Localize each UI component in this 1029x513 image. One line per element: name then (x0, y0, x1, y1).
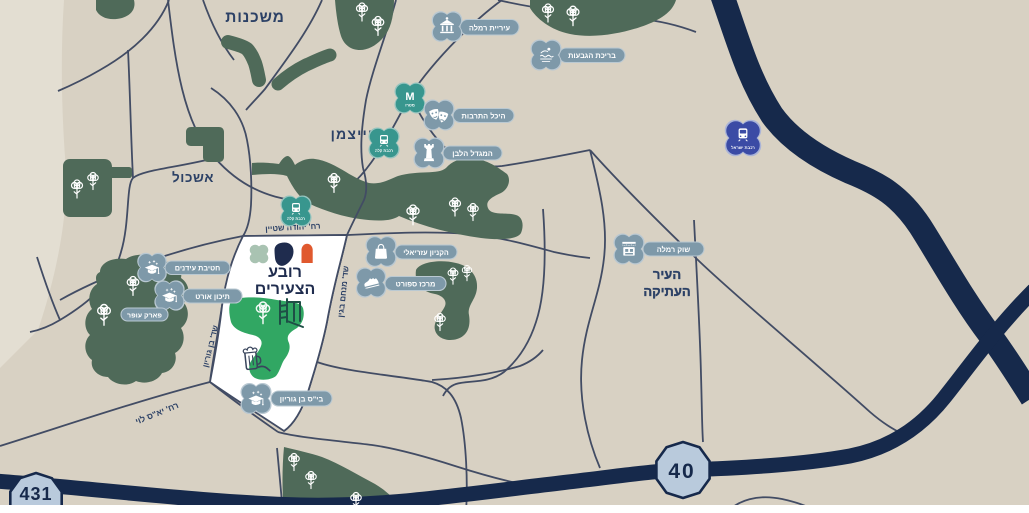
svg-text:תיכון אורט: תיכון אורט (195, 292, 230, 301)
svg-text:פארק עופר: פארק עופר (127, 312, 162, 319)
svg-text:אשכול: אשכול (172, 170, 214, 185)
svg-text:M: M (405, 91, 414, 103)
svg-text:רכבת קלה: רכבת קלה (287, 216, 305, 221)
svg-text:בי"ס בן גוריון: בי"ס בן גוריון (280, 395, 324, 404)
svg-text:משכנות: משכנות (225, 9, 284, 26)
svg-text:הקניון עזריאלי: הקניון עזריאלי (403, 248, 449, 257)
svg-text:מרכז ספורט: מרכז ספורט (396, 280, 436, 289)
svg-text:חטיבת עידנים: חטיבת עידנים (175, 264, 221, 273)
svg-text:רובע: רובע (268, 264, 302, 281)
svg-text:המגדל הלבן: המגדל הלבן (452, 149, 493, 158)
svg-text:431: 431 (19, 484, 52, 504)
svg-text:בריכת הגבעות: בריכת הגבעות (568, 51, 616, 60)
svg-text:העיר: העיר (653, 267, 681, 282)
svg-text:הצעירים: הצעירים (255, 281, 316, 298)
svg-text:שוק רמלה: שוק רמלה (657, 245, 691, 254)
svg-text:העתיקה: העתיקה (643, 284, 690, 299)
svg-text:רכבת קלה: רכבת קלה (375, 148, 393, 153)
svg-text:וייצמן: וייצמן (331, 126, 374, 142)
svg-text:40: 40 (668, 460, 695, 483)
svg-text:מטרו: מטרו (405, 103, 415, 108)
svg-text:עיריית רמלה: עיריית רמלה (469, 24, 511, 33)
svg-text:רכבת ישראל: רכבת ישראל (731, 145, 755, 150)
svg-text:היכל התרבות: היכל התרבות (462, 112, 506, 121)
